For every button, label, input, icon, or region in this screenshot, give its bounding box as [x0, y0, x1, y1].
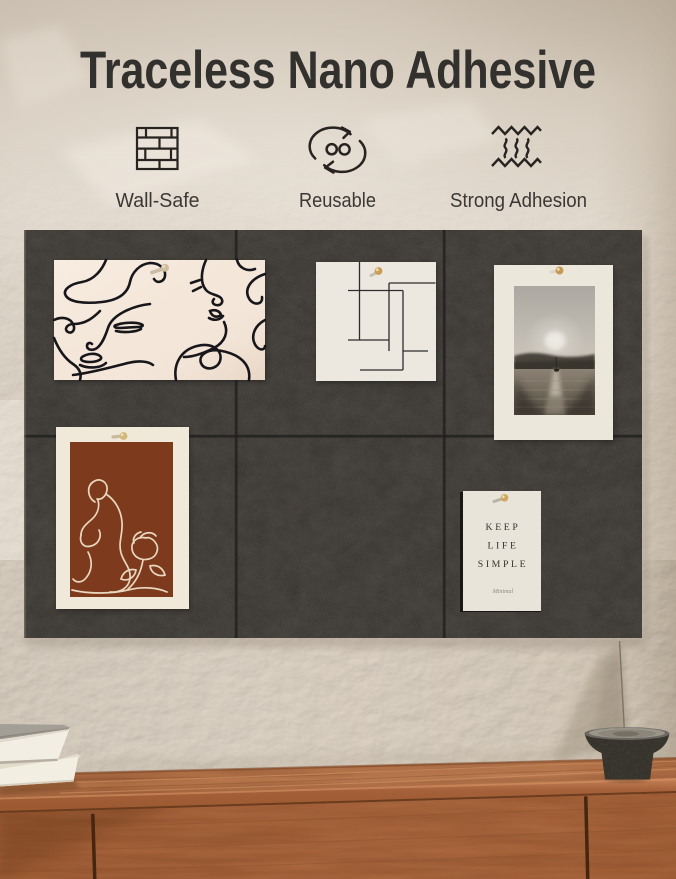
- svg-text:LIFE: LIFE: [487, 541, 518, 552]
- svg-text:Minimal: Minimal: [492, 589, 514, 595]
- svg-text:SIMPLE: SIMPLE: [478, 559, 528, 570]
- svg-text:Wall-Safe: Wall-Safe: [116, 189, 200, 212]
- svg-text:Reusable: Reusable: [299, 189, 376, 212]
- svg-text:KEEP: KEEP: [486, 522, 521, 533]
- svg-text:Strong Adhesion: Strong Adhesion: [450, 189, 587, 212]
- svg-text:Traceless Nano Adhesive: Traceless Nano Adhesive: [80, 41, 596, 100]
